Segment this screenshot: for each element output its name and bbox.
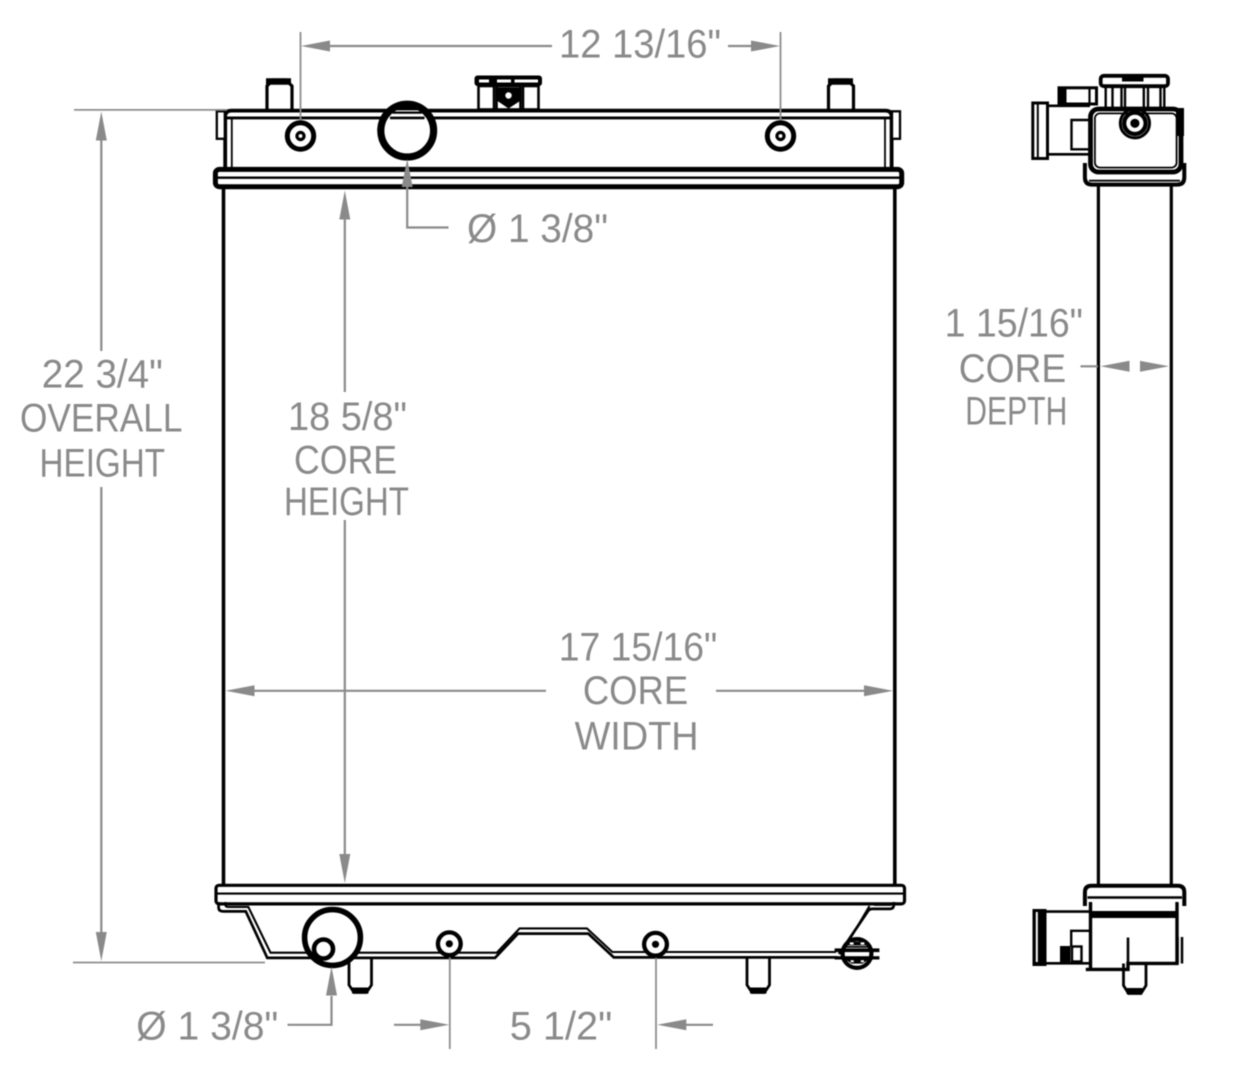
svg-text:HEIGHT: HEIGHT xyxy=(40,441,166,485)
svg-text:CORE: CORE xyxy=(583,669,688,713)
svg-text:5 1/2": 5 1/2" xyxy=(510,1005,613,1049)
svg-text:WIDTH: WIDTH xyxy=(575,714,699,758)
svg-text:CORE: CORE xyxy=(959,347,1066,391)
svg-text:18 5/8": 18 5/8" xyxy=(288,395,407,439)
svg-text:22 3/4": 22 3/4" xyxy=(42,352,163,396)
svg-text:Ø 1 3/8": Ø 1 3/8" xyxy=(136,1005,278,1049)
svg-text:12 13/16": 12 13/16" xyxy=(559,23,721,67)
svg-text:CORE: CORE xyxy=(294,438,397,482)
svg-text:17 15/16": 17 15/16" xyxy=(559,626,718,670)
svg-text:DEPTH: DEPTH xyxy=(965,390,1067,434)
svg-text:OVERALL: OVERALL xyxy=(20,396,183,440)
svg-text:HEIGHT: HEIGHT xyxy=(284,480,409,524)
svg-text:Ø 1 3/8": Ø 1 3/8" xyxy=(467,207,608,251)
svg-text:1 15/16": 1 15/16" xyxy=(945,302,1083,346)
